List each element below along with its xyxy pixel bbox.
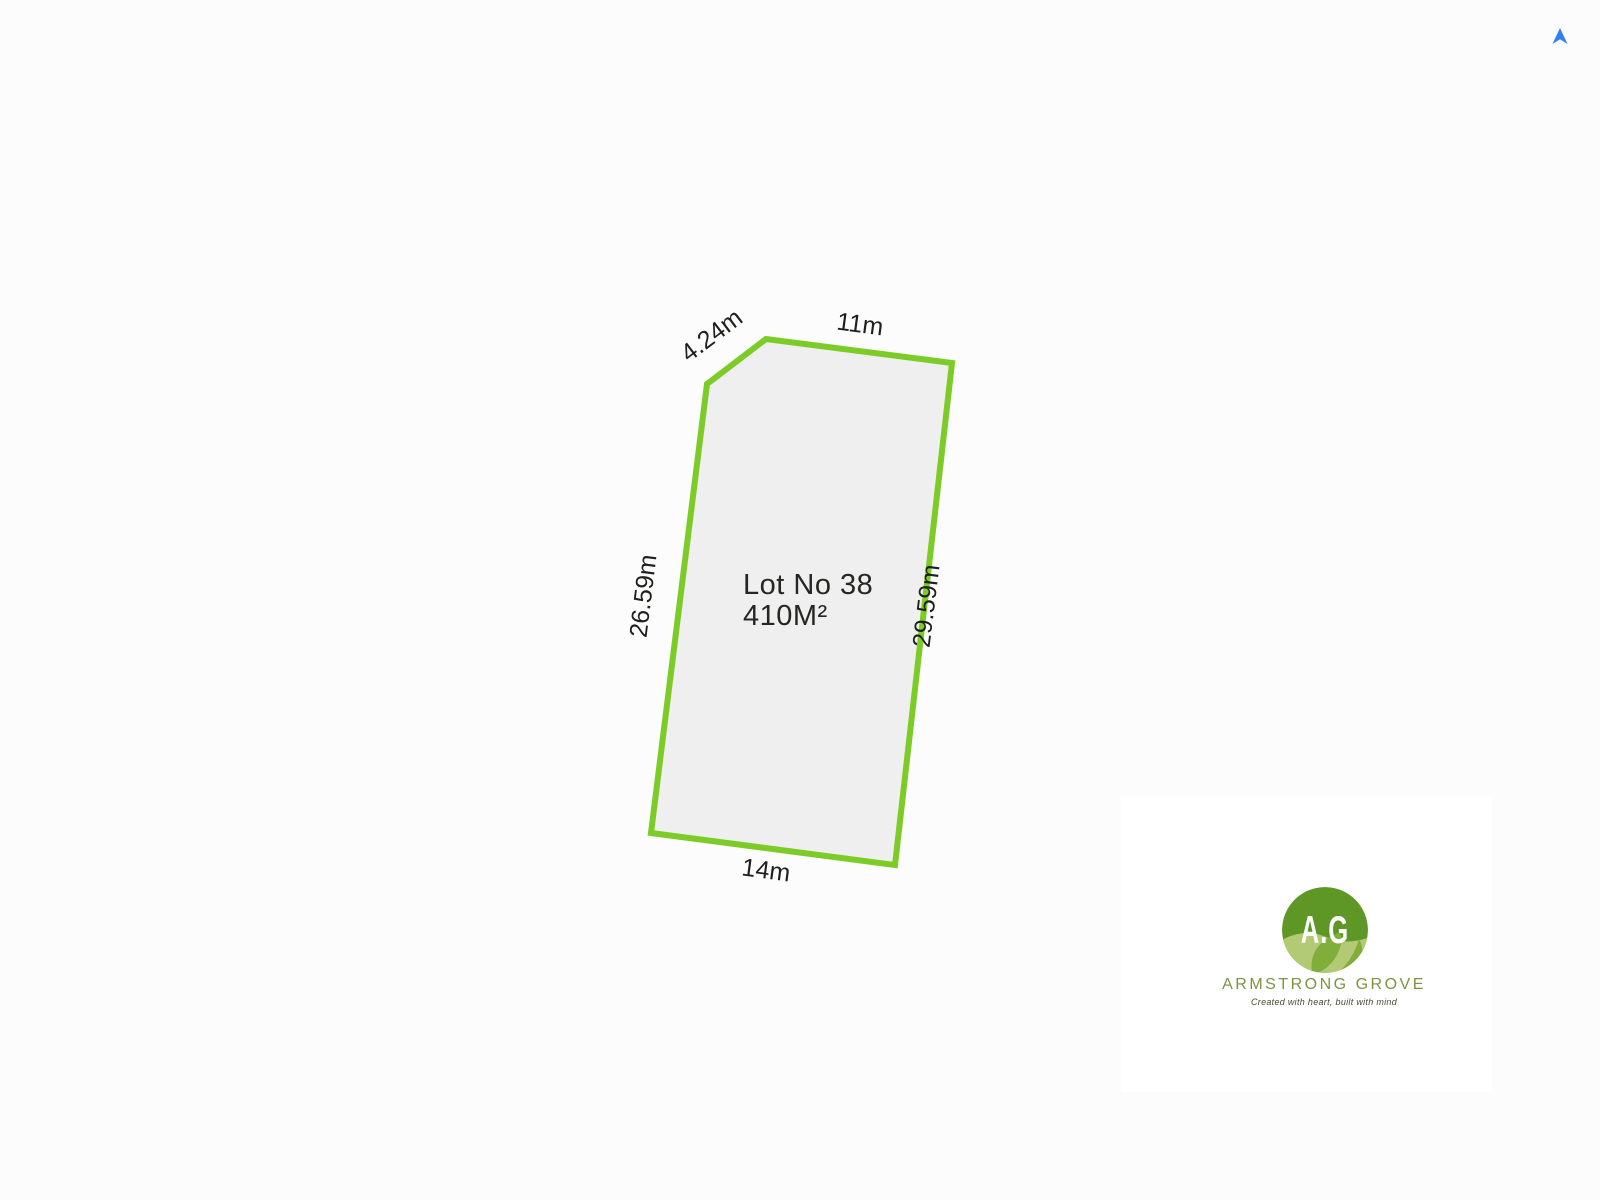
lot-area: 410M² xyxy=(743,601,873,632)
lot-plan-canvas: 4.24m 11m 26.59m 29.59m 14m Lot No 38 41… xyxy=(0,0,1600,1200)
logo-monogram: A.G xyxy=(1284,868,1366,993)
lot-label: Lot No 38 410M² xyxy=(743,570,873,631)
logo-tagline: Created with heart, built with mind xyxy=(1174,997,1474,1007)
dimension-bottom: 14m xyxy=(740,853,792,888)
lot-number: Lot No 38 xyxy=(743,570,873,601)
dimension-top: 11m xyxy=(835,308,885,343)
logo-company-name: ARMSTRONG GROVE xyxy=(1174,976,1474,994)
north-arrow-icon xyxy=(1551,27,1569,45)
